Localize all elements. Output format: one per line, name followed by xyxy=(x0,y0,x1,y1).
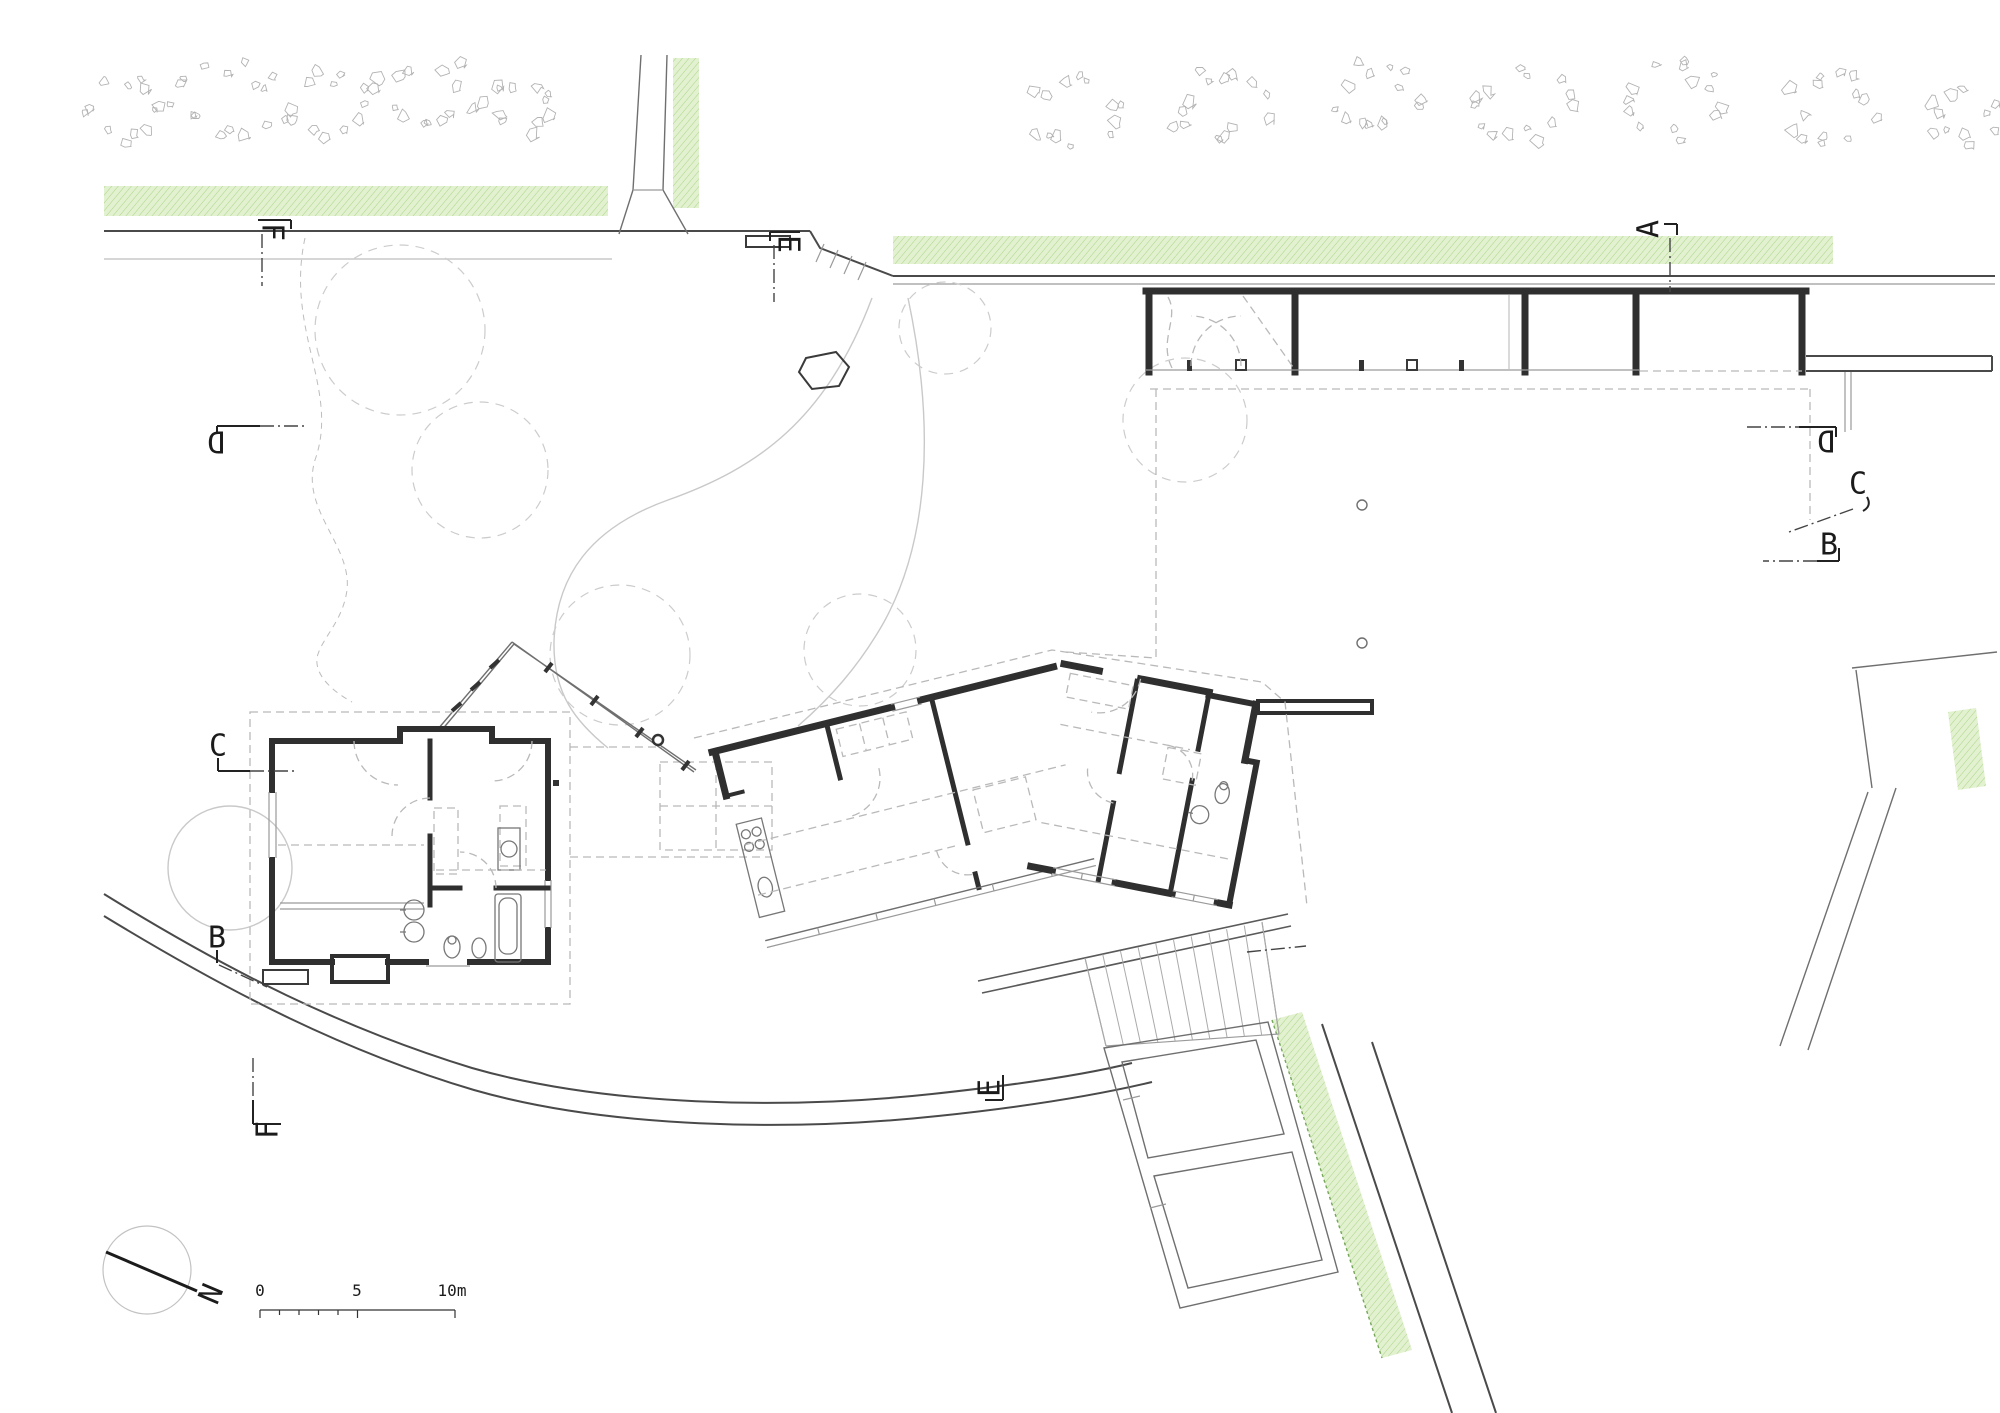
tree-row xyxy=(82,56,2000,149)
tree-leaf xyxy=(99,77,109,86)
garden-bench xyxy=(263,970,308,984)
tree-leaf xyxy=(1925,95,1939,110)
tree-leaf xyxy=(252,81,260,89)
tree-leaf xyxy=(1626,83,1639,95)
tree-leaf xyxy=(1964,142,1974,150)
wardrobe-dashed xyxy=(1066,673,1133,709)
right-wing-partitions xyxy=(1099,681,1209,893)
tree-leaf xyxy=(262,121,271,129)
closet-dashed xyxy=(434,808,458,874)
stair-step xyxy=(1103,954,1124,1044)
tree-leaf xyxy=(241,58,248,67)
courtyard-post xyxy=(1357,638,1367,648)
section-marker-a-top: A xyxy=(1632,220,1667,238)
courtyard-layer xyxy=(694,389,1810,906)
tree-leaf xyxy=(131,129,139,139)
tree-leaf xyxy=(312,65,324,77)
stair-step xyxy=(1191,936,1210,1038)
counter-sink xyxy=(501,841,517,857)
toilet xyxy=(444,936,460,958)
tree-leaf xyxy=(1247,77,1258,88)
tree-leaf xyxy=(455,57,467,69)
tree-leaf xyxy=(545,90,552,97)
tree-leaf xyxy=(1671,124,1678,132)
tree-leaf xyxy=(1782,80,1797,94)
tree-leaf xyxy=(1652,62,1661,68)
tree-leaf xyxy=(152,101,165,111)
tree-leaf xyxy=(225,126,234,134)
tree-leaf xyxy=(308,126,319,136)
tree-leaf xyxy=(1051,130,1061,143)
door-post xyxy=(1459,360,1464,371)
stair-step xyxy=(1262,922,1279,1034)
tree-canopy-dashed xyxy=(412,402,548,538)
hedge-strip-right xyxy=(893,236,1833,264)
boulder xyxy=(799,352,849,389)
tree-leaf xyxy=(268,72,277,80)
road-south-upper xyxy=(104,894,1132,1103)
stove-burner xyxy=(751,826,762,837)
tree-leaf xyxy=(1478,124,1485,130)
section-marker-b-left: B xyxy=(208,921,226,956)
terrain-dashed-line xyxy=(301,238,352,702)
tree-leaf xyxy=(1502,127,1513,140)
tree-canopy-dashed xyxy=(315,245,485,415)
tree-leaf xyxy=(1849,71,1858,82)
tree-leaf xyxy=(1470,91,1483,104)
stair-step xyxy=(1138,947,1158,1042)
tree-leaf xyxy=(1342,112,1352,124)
tree-leaf xyxy=(337,71,345,78)
tree-leaf xyxy=(1217,131,1229,144)
tree-leaf xyxy=(330,82,337,87)
tree-canopy-dashed xyxy=(804,594,916,706)
tree-leaf xyxy=(305,77,316,86)
tree-leaf xyxy=(1264,113,1274,125)
tree-leaf xyxy=(1180,121,1191,128)
neighbor-room-2 xyxy=(1154,1152,1322,1288)
tree-leaf xyxy=(1068,144,1074,149)
tree-leaf xyxy=(1106,99,1119,110)
tree-leaf xyxy=(1227,123,1237,132)
tree-leaf xyxy=(1395,84,1404,90)
left-wing-walls xyxy=(712,667,1065,797)
main-house-right-wing xyxy=(1024,664,1268,908)
tree-leaf xyxy=(1084,78,1089,83)
tree-leaf xyxy=(140,125,151,136)
tree-leaf xyxy=(1108,131,1114,137)
section-marker-e-bottom: E xyxy=(973,1079,1008,1097)
tree-leaf xyxy=(1705,86,1714,92)
street-wall-jog xyxy=(810,231,893,276)
tree-canopy-dashed xyxy=(899,282,991,374)
tree-leaf xyxy=(1487,132,1497,141)
east-boundary-line xyxy=(1845,372,1851,432)
tree-leaf xyxy=(200,63,209,69)
tree-leaf xyxy=(1796,134,1807,143)
tree-leaf xyxy=(167,102,174,108)
tree-leaf xyxy=(1378,116,1387,130)
tree-leaf xyxy=(1818,140,1825,146)
hedge-strip-left xyxy=(104,186,608,216)
bedroom-window-wall xyxy=(280,903,424,909)
door-swing-arcs xyxy=(1191,316,1241,366)
section-marker-c-left: C xyxy=(209,729,227,764)
tree-leaf xyxy=(82,110,88,117)
tree-leaf xyxy=(1710,110,1722,120)
pergola-grid-cross xyxy=(660,762,772,850)
tree-leaf xyxy=(1076,72,1082,80)
left-house xyxy=(250,712,570,1004)
tree-leaf xyxy=(85,105,94,114)
tree-leaf xyxy=(1548,117,1557,128)
tree-leaf xyxy=(1818,132,1827,140)
garage-dashed-curve xyxy=(1167,297,1172,368)
tree-leaf xyxy=(1957,86,1968,93)
tree-leaf xyxy=(1685,76,1699,89)
tree-leaf xyxy=(392,105,398,111)
garage-dashed-diagonal xyxy=(1243,296,1293,367)
tree-canopy-dashed xyxy=(550,585,690,725)
tree-leaf xyxy=(1984,110,1990,117)
freestanding-wall xyxy=(1258,701,1372,713)
tree-leaf xyxy=(1524,125,1531,131)
tree-leaf xyxy=(1030,129,1041,140)
tree-leaf xyxy=(532,117,543,126)
tree-leaf xyxy=(509,83,516,93)
tree-leaf xyxy=(543,96,549,103)
tree-leaf xyxy=(224,70,233,76)
courtyard-post xyxy=(1357,500,1367,510)
tree-leaf xyxy=(435,65,450,76)
section-marker-c-right: C xyxy=(1849,467,1867,502)
tree-leaf xyxy=(1178,107,1187,117)
tree-leaf xyxy=(1354,57,1364,66)
hedge-strip-east xyxy=(1948,708,1986,790)
tree-leaf xyxy=(1107,115,1120,129)
stair-step xyxy=(1209,933,1227,1038)
tree-leaf xyxy=(1785,124,1798,138)
skylight-dashed xyxy=(973,777,1036,833)
tree-leaf xyxy=(1871,113,1881,123)
tree-leaf xyxy=(1853,89,1860,98)
tree-leaf xyxy=(1566,90,1575,100)
closet-dashed xyxy=(500,806,526,866)
tree-leaf xyxy=(1195,67,1205,75)
tree-leaf xyxy=(361,101,369,108)
tree-leaf xyxy=(543,108,556,123)
sink xyxy=(1189,804,1210,825)
tree-leaf xyxy=(1624,106,1634,116)
bidet xyxy=(472,938,486,958)
garage-building xyxy=(1146,291,1992,372)
section-marker-b-right: B xyxy=(1820,528,1838,563)
tree-leaf xyxy=(238,128,251,141)
tree-leaf xyxy=(353,113,364,126)
shower-dashed xyxy=(1162,747,1201,785)
neighbor-room-1 xyxy=(1122,1040,1284,1158)
tree-leaf xyxy=(1801,111,1811,121)
tree-leaf xyxy=(1400,67,1410,74)
tree-leaf xyxy=(121,138,132,147)
tree-canopy-dashed xyxy=(1123,358,1247,482)
tree-leaf xyxy=(105,126,112,134)
tree-leaf xyxy=(467,103,479,114)
stair-step xyxy=(1085,958,1106,1046)
garden-layer xyxy=(168,238,1247,930)
section-marker-f-top: F xyxy=(255,223,290,241)
door-post xyxy=(1407,360,1417,370)
tree-leaf xyxy=(1516,65,1526,72)
door-post xyxy=(1359,360,1364,371)
pergola-dashed-ties xyxy=(570,747,772,857)
hedge-strip-lane xyxy=(673,58,699,208)
tree-leaf xyxy=(445,111,455,119)
tree-leaf xyxy=(1928,128,1939,139)
bathtub-inner xyxy=(499,898,517,954)
fence-end-post xyxy=(553,780,559,786)
section-markers: F E A D C B F E D C B xyxy=(207,220,1869,1139)
tree-leaf xyxy=(340,126,348,134)
scale-label-0: 0 xyxy=(255,1281,265,1300)
tree-leaf xyxy=(1624,96,1635,105)
stair-step xyxy=(1120,951,1140,1044)
tree-leaf xyxy=(1332,107,1339,112)
neighbor-wall-notches xyxy=(1123,1096,1166,1208)
stair-step xyxy=(1156,944,1175,1042)
tree-leaf xyxy=(1530,134,1544,148)
tree-leaf xyxy=(1813,80,1823,88)
tree-leaf xyxy=(1557,74,1566,83)
tree-leaf xyxy=(1341,80,1355,94)
tree-leaf xyxy=(1219,73,1229,84)
north-arrow-icon: N xyxy=(103,1226,229,1314)
site-plan-canvas: F E A D C B F E D C B N 0 5 10m xyxy=(0,0,2000,1413)
tree-leaf xyxy=(138,76,146,83)
tree-leaf xyxy=(1637,122,1644,131)
door-swing-arcs xyxy=(840,752,975,900)
site-plan-sheet: F E A D C B F E D C B N 0 5 10m xyxy=(0,0,2000,1413)
tree-leaf xyxy=(1836,68,1846,77)
hedge-strips xyxy=(104,58,1986,1358)
sink xyxy=(404,922,424,942)
interior-dashed-lines xyxy=(1041,724,1249,859)
scale-bar-ticks xyxy=(260,1310,455,1318)
tree-leaf xyxy=(1524,73,1530,78)
porch-stub xyxy=(332,956,388,982)
stair-steps xyxy=(1085,922,1279,1046)
stove-burner xyxy=(740,829,751,840)
tree-leaf xyxy=(1118,101,1124,108)
courtyard-dashed-outline xyxy=(1066,389,1810,658)
section-marker-d-left: D xyxy=(207,427,225,462)
fence-lines xyxy=(438,642,696,772)
tree-leaf xyxy=(1567,100,1579,112)
tree-leaf xyxy=(180,76,187,81)
tree-leaf xyxy=(1959,128,1971,140)
section-marker-f-bottom: F xyxy=(251,1121,286,1139)
tree-leaf xyxy=(319,132,331,144)
tree-leaf xyxy=(140,83,151,94)
tree-leaf xyxy=(1483,86,1495,99)
garden-path-curve-2 xyxy=(798,298,924,726)
tree-leaf xyxy=(1858,94,1869,106)
tree-leaf xyxy=(437,115,448,126)
tree-leaf xyxy=(1944,89,1957,102)
section-marker-e-top: E xyxy=(771,235,806,253)
main-roof-dashed-outline xyxy=(694,650,1307,906)
north-label: N xyxy=(189,1278,228,1308)
tree-leaf xyxy=(216,131,227,139)
left-house-north-wall xyxy=(272,729,548,741)
tree-leaf xyxy=(285,103,298,117)
tree-leaf xyxy=(1206,79,1213,85)
tree-leaf xyxy=(1844,136,1851,141)
tree-leaf xyxy=(1711,73,1717,78)
garage-east-wall-cap xyxy=(1806,356,1992,371)
tree-leaf xyxy=(1041,91,1052,101)
tree-leaf xyxy=(1027,86,1040,98)
tree-leaf xyxy=(1715,102,1729,114)
tree-leaf xyxy=(531,84,543,94)
fence-post-circle xyxy=(653,735,663,745)
tree-leaf xyxy=(175,80,186,88)
tree-leaf xyxy=(452,80,461,93)
tree-leaf xyxy=(1934,109,1945,119)
section-marker-d-right: D xyxy=(1817,426,1835,461)
stair-step xyxy=(1244,926,1261,1036)
tree-leaf xyxy=(403,66,414,75)
toilet-tank xyxy=(448,936,456,944)
stair-step xyxy=(1227,929,1245,1036)
hedge-strip-southeast xyxy=(1272,1012,1412,1358)
scale-label-5: 5 xyxy=(352,1281,362,1300)
tree-leaf xyxy=(1167,121,1178,132)
tree-leaf xyxy=(1991,100,2000,109)
tree-leaf xyxy=(1944,127,1950,134)
tree-leaf xyxy=(1366,68,1375,78)
tree-leaf xyxy=(1816,73,1824,80)
sink-tap xyxy=(1188,812,1193,813)
tree-leaf xyxy=(477,96,488,108)
tree-leaf xyxy=(261,85,267,92)
tree-leaf xyxy=(1990,127,1999,135)
stair-step xyxy=(1174,940,1193,1040)
tree-leaf xyxy=(1183,94,1197,108)
tree-leaf xyxy=(526,127,539,142)
tree-leaf xyxy=(398,109,410,122)
garden-path-curve-1 xyxy=(554,298,872,748)
north-needle xyxy=(106,1252,197,1291)
scale-label-10m: 10m xyxy=(438,1281,467,1300)
tree-leaf xyxy=(1059,76,1071,88)
tree-leaf xyxy=(1676,137,1685,144)
tree-leaf xyxy=(1387,65,1393,71)
scale-bar: 0 5 10m xyxy=(255,1281,466,1318)
tree-leaf xyxy=(125,82,132,89)
tree-leaf xyxy=(1264,90,1270,99)
